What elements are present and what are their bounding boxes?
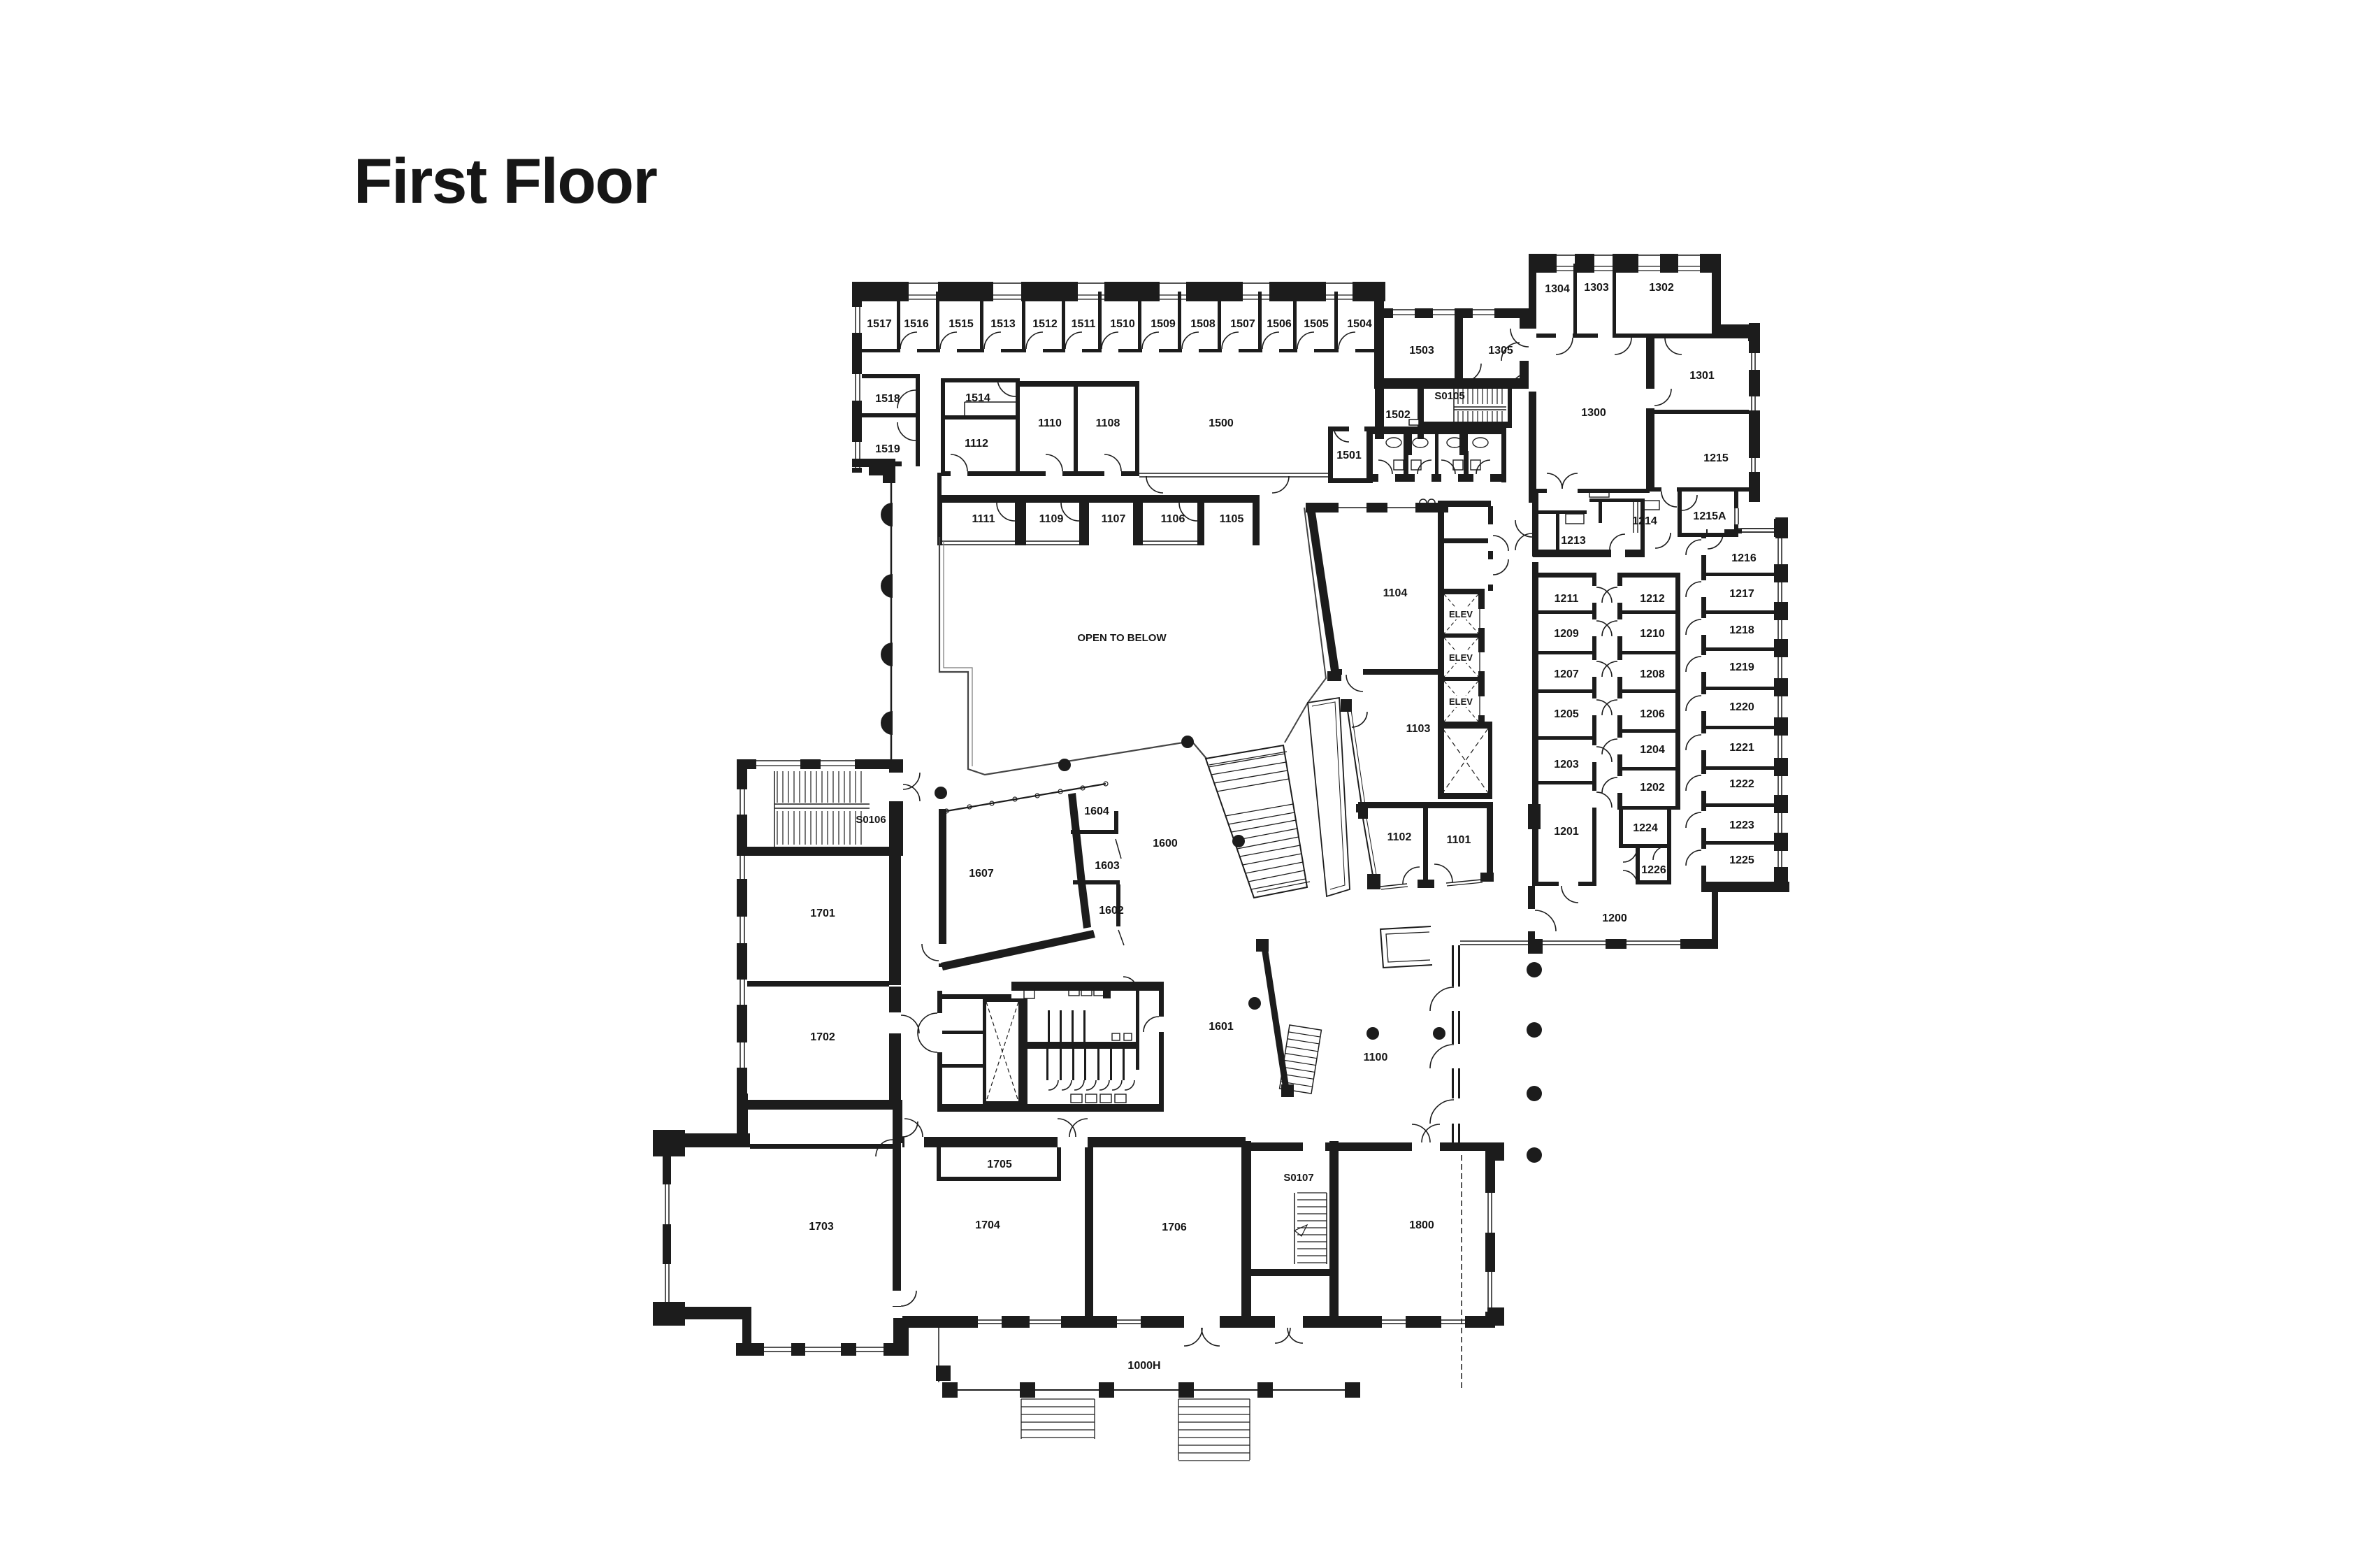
svg-text:1213: 1213 [1561, 535, 1586, 547]
svg-text:1703: 1703 [809, 1221, 834, 1233]
svg-text:1304: 1304 [1545, 283, 1570, 295]
svg-text:1705: 1705 [987, 1159, 1012, 1170]
svg-text:1101: 1101 [1447, 834, 1471, 846]
svg-text:1217: 1217 [1729, 588, 1754, 600]
svg-text:1604: 1604 [1084, 805, 1109, 817]
svg-text:1220: 1220 [1729, 701, 1754, 713]
svg-text:1224: 1224 [1633, 822, 1658, 834]
svg-text:1100: 1100 [1364, 1052, 1388, 1063]
svg-text:1200: 1200 [1602, 912, 1627, 924]
svg-text:1305: 1305 [1488, 345, 1513, 357]
svg-text:1108: 1108 [1096, 417, 1120, 429]
svg-text:1800: 1800 [1409, 1219, 1434, 1231]
svg-text:1701: 1701 [810, 908, 835, 919]
svg-text:1216: 1216 [1731, 552, 1757, 564]
svg-text:ELEV: ELEV [1449, 609, 1473, 619]
svg-text:1607: 1607 [969, 868, 994, 880]
svg-text:1202: 1202 [1640, 782, 1665, 794]
svg-text:1218: 1218 [1729, 624, 1754, 636]
svg-text:1204: 1204 [1640, 744, 1665, 756]
svg-text:1215A: 1215A [1693, 510, 1726, 522]
svg-text:1501: 1501 [1336, 450, 1362, 461]
svg-text:1702: 1702 [810, 1031, 835, 1043]
svg-text:1601: 1601 [1209, 1021, 1234, 1033]
svg-text:1203: 1203 [1554, 759, 1579, 770]
svg-text:1507: 1507 [1230, 318, 1255, 330]
svg-text:1222: 1222 [1729, 778, 1754, 790]
svg-text:1518: 1518 [875, 393, 900, 405]
svg-text:1515: 1515 [949, 318, 974, 330]
svg-text:ELEV: ELEV [1449, 696, 1473, 707]
svg-text:1302: 1302 [1649, 282, 1674, 294]
svg-text:ELEV: ELEV [1449, 652, 1473, 663]
svg-text:1600: 1600 [1153, 838, 1178, 850]
svg-text:1519: 1519 [875, 443, 900, 455]
svg-text:1512: 1512 [1032, 318, 1058, 330]
svg-text:1510: 1510 [1110, 318, 1135, 330]
svg-text:1513: 1513 [990, 318, 1016, 330]
svg-text:1110: 1110 [1038, 417, 1062, 429]
svg-text:1214: 1214 [1632, 515, 1657, 527]
svg-text:1206: 1206 [1640, 708, 1665, 720]
svg-text:1504: 1504 [1347, 318, 1372, 330]
svg-text:1209: 1209 [1554, 628, 1579, 640]
svg-text:1303: 1303 [1584, 282, 1609, 294]
svg-text:1508: 1508 [1190, 318, 1216, 330]
svg-text:1301: 1301 [1689, 370, 1715, 382]
svg-text:1503: 1503 [1409, 345, 1434, 357]
svg-text:1514: 1514 [965, 392, 990, 404]
svg-text:S0106: S0106 [856, 814, 886, 826]
svg-text:1516: 1516 [904, 318, 929, 330]
svg-text:1109: 1109 [1039, 513, 1064, 525]
svg-text:1201: 1201 [1554, 826, 1579, 838]
svg-text:1506: 1506 [1267, 318, 1292, 330]
svg-text:1212: 1212 [1640, 593, 1665, 605]
svg-text:1300: 1300 [1581, 407, 1606, 419]
svg-text:1000H: 1000H [1127, 1360, 1160, 1372]
svg-text:1208: 1208 [1640, 668, 1665, 680]
svg-text:1225: 1225 [1729, 854, 1754, 866]
svg-text:OPEN TO BELOW: OPEN TO BELOW [1077, 632, 1167, 644]
svg-text:1603: 1603 [1095, 860, 1120, 872]
svg-text:1223: 1223 [1729, 819, 1754, 831]
svg-text:1112: 1112 [965, 438, 988, 450]
svg-text:1509: 1509 [1151, 318, 1176, 330]
svg-text:1500: 1500 [1209, 417, 1234, 429]
svg-text:1706: 1706 [1162, 1221, 1187, 1233]
svg-text:S0105: S0105 [1434, 390, 1464, 402]
svg-text:1502: 1502 [1385, 409, 1411, 421]
svg-text:1505: 1505 [1304, 318, 1329, 330]
svg-text:1102: 1102 [1387, 831, 1412, 843]
svg-text:1704: 1704 [975, 1219, 1000, 1231]
svg-text:1107: 1107 [1102, 513, 1126, 525]
svg-text:1215: 1215 [1703, 452, 1729, 464]
svg-text:1104: 1104 [1383, 587, 1408, 599]
svg-text:1511: 1511 [1072, 318, 1096, 330]
svg-text:1517: 1517 [867, 318, 892, 330]
svg-text:1211: 1211 [1555, 593, 1579, 605]
svg-text:1105: 1105 [1220, 513, 1244, 525]
svg-text:1207: 1207 [1554, 668, 1579, 680]
svg-text:1205: 1205 [1554, 708, 1579, 720]
svg-text:1106: 1106 [1161, 513, 1185, 525]
svg-text:1219: 1219 [1729, 661, 1754, 673]
svg-text:First Floor: First Floor [354, 146, 658, 217]
svg-text:1210: 1210 [1640, 628, 1665, 640]
svg-text:1103: 1103 [1406, 723, 1431, 735]
svg-text:1602: 1602 [1099, 905, 1124, 917]
svg-text:1221: 1221 [1729, 742, 1754, 754]
svg-text:S0107: S0107 [1283, 1172, 1313, 1184]
svg-text:1111: 1111 [972, 513, 995, 525]
svg-text:1226: 1226 [1641, 864, 1666, 876]
